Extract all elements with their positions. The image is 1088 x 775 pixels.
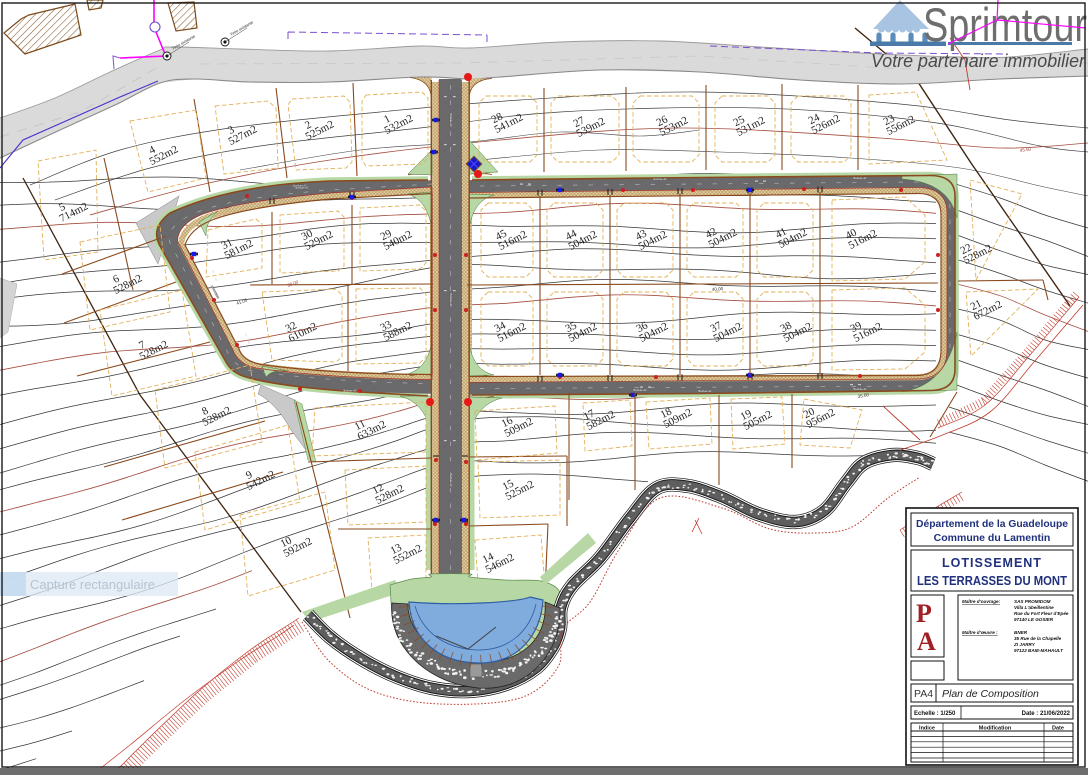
svg-text:Indice: Indice [919,726,935,732]
svg-text:Capture rectangulaire: Capture rectangulaire [30,577,155,592]
svg-text:Votre partenaire immobilier: Votre partenaire immobilier [871,50,1086,71]
svg-text:Bordure A2: Bordure A2 [449,294,453,308]
svg-text:Bordure A2: Bordure A2 [295,185,309,189]
svg-text:ZI JARRY: ZI JARRY [1013,642,1036,647]
svg-text:Bordure A2: Bordure A2 [634,388,648,392]
svg-text:Rue du Fort Fleur d'Epée: Rue du Fort Fleur d'Epée [1014,611,1069,616]
svg-text:Maître d'ouvrage:: Maître d'ouvrage: [962,599,1001,604]
svg-text:Villa L'abeillentine: Villa L'abeillentine [1014,605,1054,610]
svg-text:LOTISSEMENT: LOTISSEMENT [942,556,1042,570]
svg-text:SAS PROMIDOM: SAS PROMIDOM [1014,599,1051,604]
svg-text:97122 BAIE-MAHAULT: 97122 BAIE-MAHAULT [1014,648,1064,653]
svg-text:Date: Date [1052,726,1064,732]
svg-text:Bordure A2: Bordure A2 [854,176,868,180]
svg-text:Bordure A2: Bordure A2 [449,474,453,488]
svg-text:Commune du Lamentin: Commune du Lamentin [934,532,1051,544]
svg-text:A: A [917,627,936,656]
svg-text:Bordure A2: Bordure A2 [854,387,868,391]
svg-text:Bordure A2: Bordure A2 [344,389,358,393]
svg-text:40.00: 40.00 [712,286,724,292]
svg-text:Bordure A2: Bordure A2 [653,177,667,181]
svg-text:Département de la Guadeloupe: Département de la Guadeloupe [916,518,1068,530]
svg-text:P: P [916,599,932,628]
svg-text:Modification: Modification [979,726,1012,732]
svg-text:LES TERRASSES DU MONT: LES TERRASSES DU MONT [917,574,1067,588]
svg-text:Bordure A2: Bordure A2 [699,389,713,393]
svg-text:35 Rue de la Chapelle: 35 Rue de la Chapelle [1014,636,1062,641]
svg-text:97140 LE GOSIER: 97140 LE GOSIER [1014,617,1054,622]
svg-text:Maître d'œuvre :: Maître d'œuvre : [962,630,998,635]
svg-text:PA4: PA4 [914,688,933,700]
svg-text:Plan de Composition: Plan de Composition [942,688,1039,700]
svg-text:BNER: BNER [1014,630,1028,635]
svg-text:Date : 21/06/2022: Date : 21/06/2022 [1022,711,1071,717]
svg-text:Bordure A2: Bordure A2 [449,114,453,128]
svg-text:Echelle : 1/250: Echelle : 1/250 [914,711,956,717]
